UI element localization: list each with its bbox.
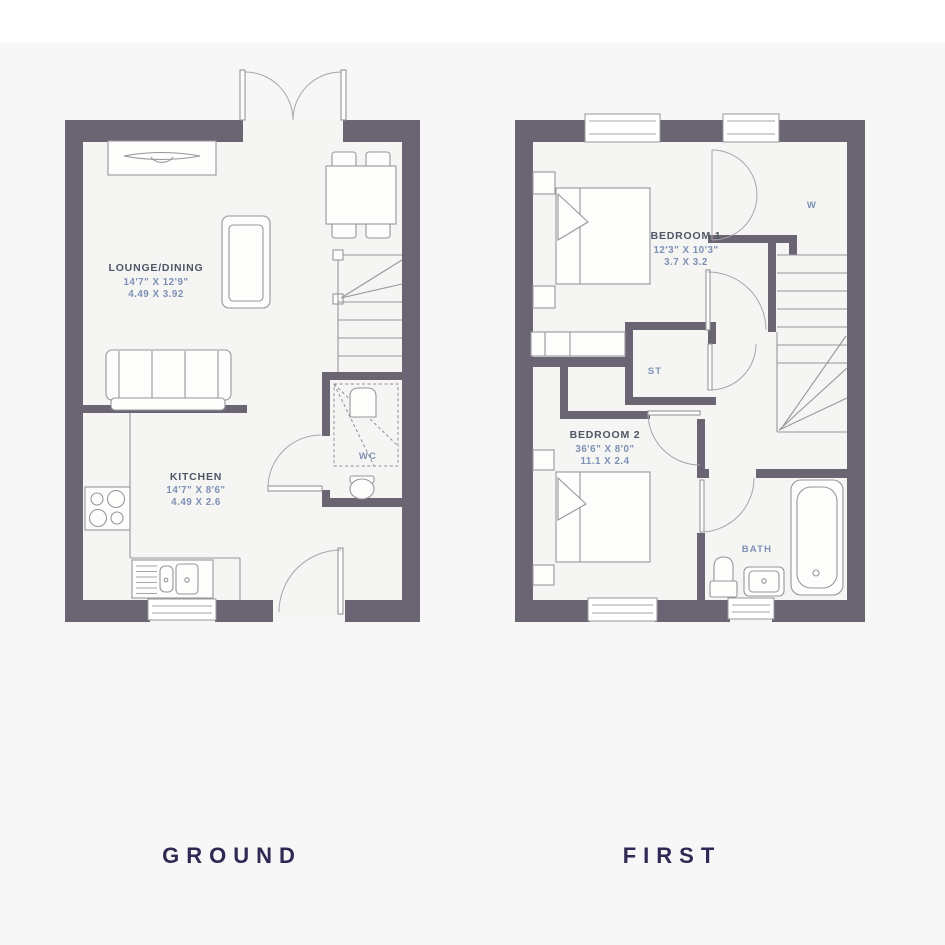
ground-floor-plan: LOUNGE/DINING 14'7" X 12'9" 4.49 X 3.92 …	[65, 70, 420, 622]
ground-floor-title: GROUND	[162, 843, 302, 868]
window-frame	[588, 598, 657, 621]
window-frame	[585, 114, 660, 142]
kitchen-sink	[132, 560, 213, 598]
tv-cabinet	[108, 141, 216, 175]
window-top-1	[585, 114, 660, 142]
bedroom2-label: BEDROOM 2	[570, 429, 641, 441]
armchair	[222, 216, 270, 308]
nightstand	[533, 286, 555, 308]
bedroom1-metric: 3.7 X 3.2	[664, 257, 708, 268]
nightstand	[533, 450, 554, 470]
kitchen-imperial: 14'7" X 8'6"	[166, 485, 225, 496]
kitchen-metric: 4.49 X 2.6	[171, 497, 221, 508]
bath-toilet	[710, 557, 737, 597]
door-leaf	[706, 270, 710, 330]
wc-toilet-bowl	[350, 479, 374, 499]
bedroom1-label: BEDROOM 1	[651, 230, 722, 242]
front-door-leaf	[338, 548, 343, 614]
first-floor-plan: BEDROOM 1 12'3" X 10'3" 3.7 X 3.2 BEDROO…	[515, 114, 865, 622]
patio-door-opening	[243, 120, 343, 142]
wardrobe-label: W	[807, 200, 817, 211]
newel-post	[333, 250, 343, 260]
patio-door-leaf-right	[341, 70, 346, 120]
kitchen-label: KITCHEN	[170, 471, 222, 483]
kitchen-window	[148, 599, 216, 620]
wc-door-leaf	[268, 486, 322, 491]
lounge-dining-label: LOUNGE/DINING	[109, 262, 204, 274]
first-floor-title: FIRST	[623, 843, 722, 868]
wc-label: WC	[359, 451, 377, 462]
bedroom2-imperial: 36'6" X 8'0"	[575, 444, 634, 455]
front-door-opening	[273, 600, 345, 622]
bedroom1-imperial: 12'3" X 10'3"	[653, 245, 718, 256]
nightstand	[533, 565, 554, 585]
toilet-bowl	[714, 557, 733, 581]
bathtub	[791, 480, 843, 595]
top-white-strip	[0, 0, 945, 43]
sofa	[106, 350, 231, 410]
bath-label: BATH	[742, 544, 772, 555]
dining-table	[326, 166, 396, 224]
door-leaf	[700, 480, 704, 532]
patio-door-leaf-left	[240, 70, 245, 120]
lounge-dining-metric: 4.49 X 3.92	[128, 289, 184, 300]
toilet-cistern	[710, 581, 737, 597]
bed-outline	[556, 472, 650, 562]
sofa-frame	[106, 350, 231, 400]
tv-unit	[108, 141, 216, 175]
window-frame	[148, 599, 216, 620]
window-frame	[728, 598, 774, 619]
nightstand	[533, 172, 555, 194]
bedroom1-dresser	[531, 332, 625, 356]
bedroom2-metric: 11.1 X 2.4	[580, 456, 629, 467]
store-label: ST	[648, 366, 663, 377]
window-frame	[723, 114, 779, 142]
wc-basin	[350, 388, 376, 417]
floorplan-canvas: LOUNGE/DINING 14'7" X 12'9" 4.49 X 3.92 …	[0, 0, 945, 945]
door-leaf	[648, 411, 700, 415]
bath-basin	[744, 567, 784, 596]
window-top-2	[723, 114, 779, 142]
bed-outline	[556, 188, 650, 284]
lounge-dining-imperial: 14'7" X 12'9"	[123, 277, 188, 288]
sofa-seat-edge	[111, 398, 225, 410]
door-leaf	[708, 344, 712, 390]
window-bottom-1	[588, 598, 657, 621]
window-bottom-2	[728, 598, 774, 619]
